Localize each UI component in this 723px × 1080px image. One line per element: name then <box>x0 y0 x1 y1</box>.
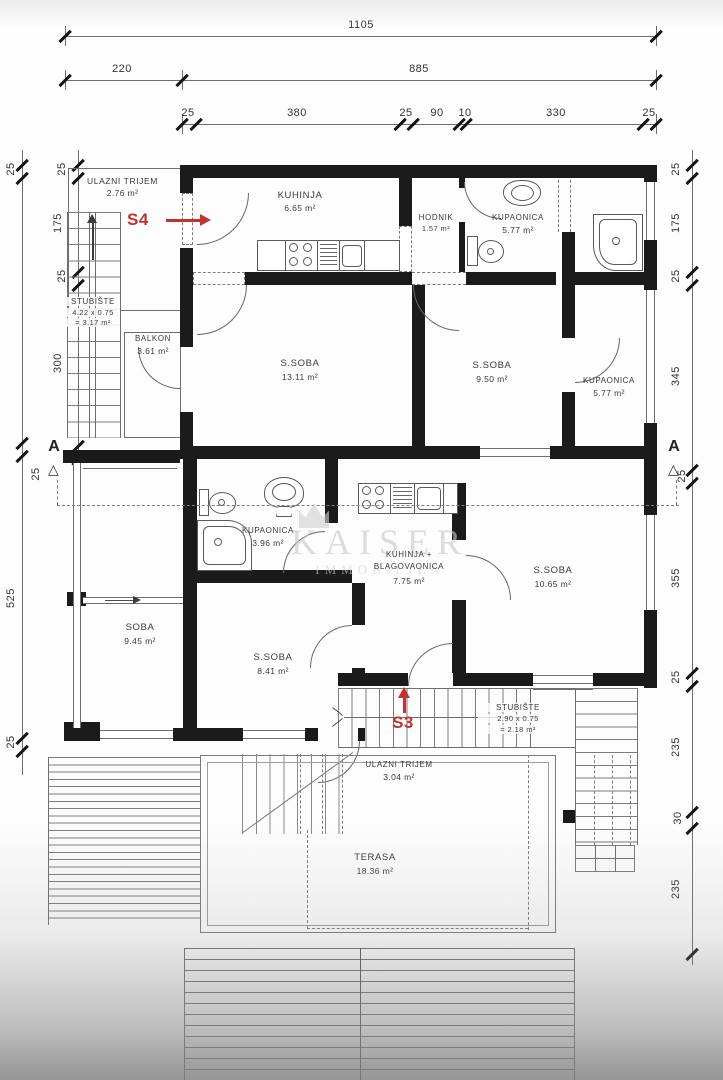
section-line <box>57 505 679 506</box>
section-label: A <box>44 438 64 456</box>
dim-label: 175 <box>670 203 682 243</box>
steps-edge <box>48 757 49 925</box>
dim-label: 25 <box>170 107 206 119</box>
wall <box>183 570 352 583</box>
stair-direction-stem <box>92 222 94 260</box>
wall <box>338 673 408 686</box>
room-area: 10.65 m² <box>508 579 598 589</box>
room-area: 9.45 m² <box>95 636 185 646</box>
shower-drain <box>214 538 222 546</box>
staircase-right-run <box>575 688 637 845</box>
room-area: 13.11 m² <box>255 372 345 382</box>
wall <box>180 165 193 193</box>
room-label: ULAZNI TRIJEM <box>75 176 170 186</box>
wall <box>644 423 657 515</box>
porch-edge <box>68 168 180 169</box>
marker-s3: S3 <box>388 713 418 733</box>
toilet-tank <box>467 236 478 266</box>
kitchen-sink <box>417 487 441 510</box>
window <box>100 730 173 739</box>
room-area: 1.57 m² <box>406 224 466 233</box>
door-arc <box>408 643 453 686</box>
opening-dash <box>558 180 559 232</box>
room-label: S.SOBA <box>508 565 598 576</box>
steps-edge <box>574 948 575 1080</box>
steps-edge <box>184 948 185 1080</box>
wall-opening <box>193 272 245 285</box>
section-arrow-icon: △ <box>668 461 679 478</box>
room-label: TERASA <box>330 852 420 863</box>
room-area: 9.50 m² <box>447 374 537 384</box>
dim-label: 25 <box>631 107 667 119</box>
counter-divider <box>414 483 415 514</box>
dim-label: 25 <box>5 149 17 189</box>
wall <box>245 272 412 285</box>
room-area: 5.77 m² <box>570 388 648 398</box>
wall <box>173 728 243 741</box>
dim-label: 25 <box>30 454 42 494</box>
dim-label: 525 <box>5 578 17 618</box>
stair-edge <box>338 747 575 748</box>
sink-basin <box>272 483 296 501</box>
stove-burner-icon <box>362 486 371 495</box>
shower-drain <box>612 237 620 245</box>
drainer-icon <box>320 244 337 268</box>
wall <box>550 446 657 459</box>
wall <box>180 165 657 178</box>
wall <box>466 272 556 285</box>
stair-edge <box>120 212 121 438</box>
room-area: = 2.18 m² <box>478 725 558 734</box>
dim-line <box>182 124 657 125</box>
counter-divider <box>390 483 391 514</box>
room-label: BLAGOVAONICA <box>355 562 463 571</box>
window <box>480 448 550 457</box>
wall <box>453 673 466 686</box>
sink-pedestal <box>276 506 292 517</box>
stove-burner-icon <box>289 257 298 266</box>
terrace-inner-outline <box>207 762 549 926</box>
dim-label: 235 <box>670 869 682 909</box>
wall <box>593 673 657 686</box>
stair-dash <box>630 755 631 845</box>
room-area: 7.75 m² <box>355 576 463 586</box>
dim-line <box>65 80 657 81</box>
dim-label: 220 <box>87 63 157 75</box>
window-wall <box>73 463 81 728</box>
dim-label: 25 <box>670 149 682 189</box>
floor-plan: 1105 220 885 25 380 25 90 10 330 25 25 5… <box>0 0 723 1080</box>
dim-label: 345 <box>670 356 682 396</box>
dim-label-total: 1105 <box>291 19 431 31</box>
wall-corner <box>64 722 100 741</box>
room-area: 3.61 m² <box>126 346 180 356</box>
dim-label: 235 <box>670 727 682 767</box>
dim-label: 355 <box>670 558 682 598</box>
dim-label: 380 <box>279 107 315 119</box>
wall-inner-line <box>83 468 177 469</box>
passage-dash <box>412 272 466 273</box>
drainer-icon <box>393 487 412 511</box>
door-arc <box>197 285 247 335</box>
room-label: HODNIK <box>406 213 466 222</box>
room-label: KUHINJA + <box>355 550 463 559</box>
wall <box>644 165 657 182</box>
room-area: 6.65 m² <box>250 203 350 213</box>
section-dash <box>57 480 58 505</box>
s3-arrow-line <box>403 697 406 713</box>
window <box>243 730 305 739</box>
stove-burner-icon <box>303 243 312 252</box>
front-steps <box>184 948 574 1080</box>
room-area: = 3.17 m² <box>66 318 120 327</box>
dim-label: 175 <box>52 203 64 243</box>
counter-divider <box>339 240 340 271</box>
marker-s4: S4 <box>127 210 149 230</box>
side-steps <box>48 757 200 925</box>
toilet-detail <box>487 248 494 255</box>
counter-divider <box>364 240 365 271</box>
room-label: SOBA <box>95 622 185 633</box>
room-label: STUBIŠTE <box>478 703 558 712</box>
kitchen-sink <box>342 245 362 267</box>
room-label: KUHINJA <box>250 190 350 201</box>
window <box>646 182 655 240</box>
arrow-line <box>105 600 133 602</box>
wall <box>352 583 365 625</box>
section-arrow-icon: △ <box>48 461 59 478</box>
arrow-icon <box>133 596 141 604</box>
dim-label: 885 <box>384 63 454 75</box>
dim-label: 300 <box>52 343 64 383</box>
room-area: 2.76 m² <box>75 188 170 198</box>
wall <box>63 450 180 463</box>
room-label: ULAZNI TRIJEM <box>350 760 448 769</box>
wall <box>452 600 466 673</box>
room-label: KUPAONICA <box>228 526 308 535</box>
room-area: 3.04 m² <box>350 772 448 782</box>
stove-burner-icon <box>289 243 298 252</box>
room-area: 8.41 m² <box>228 666 318 676</box>
stove-burner-icon <box>375 486 384 495</box>
wall <box>325 459 338 523</box>
s4-arrow-line <box>166 219 200 222</box>
wall <box>572 272 657 285</box>
toilet-tank <box>199 489 209 516</box>
window <box>646 515 655 610</box>
wall <box>562 285 575 338</box>
porch-edge <box>120 310 180 311</box>
window <box>646 290 655 423</box>
room-calc: 4.22 x 0.75 <box>66 308 120 317</box>
stair-dash <box>594 755 595 845</box>
room-area: 18.36 m² <box>330 866 420 876</box>
dim-label: 330 <box>538 107 574 119</box>
dim-label: 25 <box>5 722 17 762</box>
room-area: 3.96 m² <box>228 538 308 548</box>
dim-line <box>22 150 23 775</box>
dim-label: 30 <box>672 798 684 838</box>
dim-label: 25 <box>670 256 682 296</box>
wall <box>466 673 533 686</box>
wall <box>305 728 318 741</box>
room-label: S.SOBA <box>228 652 318 663</box>
room-label: KUPAONICA <box>570 376 648 385</box>
room-calc: 2.90 x 0.75 <box>478 714 558 723</box>
wall <box>180 248 193 347</box>
room-label: S.SOBA <box>255 358 345 369</box>
window <box>533 675 593 684</box>
sink-basin <box>511 185 534 201</box>
grid-line <box>575 858 635 859</box>
room-label: STUBIŠTE <box>66 297 120 306</box>
counter-divider <box>317 240 318 271</box>
room-label: S.SOBA <box>447 360 537 371</box>
counter-divider <box>443 483 444 514</box>
stove-burner-icon <box>303 257 312 266</box>
stair-dash <box>612 755 613 845</box>
room-area: 5.77 m² <box>478 225 558 235</box>
dim-label: 25 <box>56 149 68 189</box>
wall <box>183 459 197 728</box>
counter-divider <box>285 240 286 271</box>
stair-edge <box>637 688 638 845</box>
room-label: KUPAONICA <box>478 213 558 222</box>
section-label: A <box>664 438 684 456</box>
opening-dash <box>570 180 571 232</box>
dim-line <box>65 36 657 37</box>
section-dash <box>676 480 677 505</box>
dim-label: 10 <box>447 107 483 119</box>
stair-edge <box>575 688 576 845</box>
s4-arrow-icon <box>200 214 211 226</box>
steps-divider <box>360 948 361 1080</box>
room-label: BALKON <box>126 334 180 343</box>
door-arc <box>466 555 511 600</box>
dim-label: 25 <box>670 657 682 697</box>
wall <box>180 446 480 459</box>
